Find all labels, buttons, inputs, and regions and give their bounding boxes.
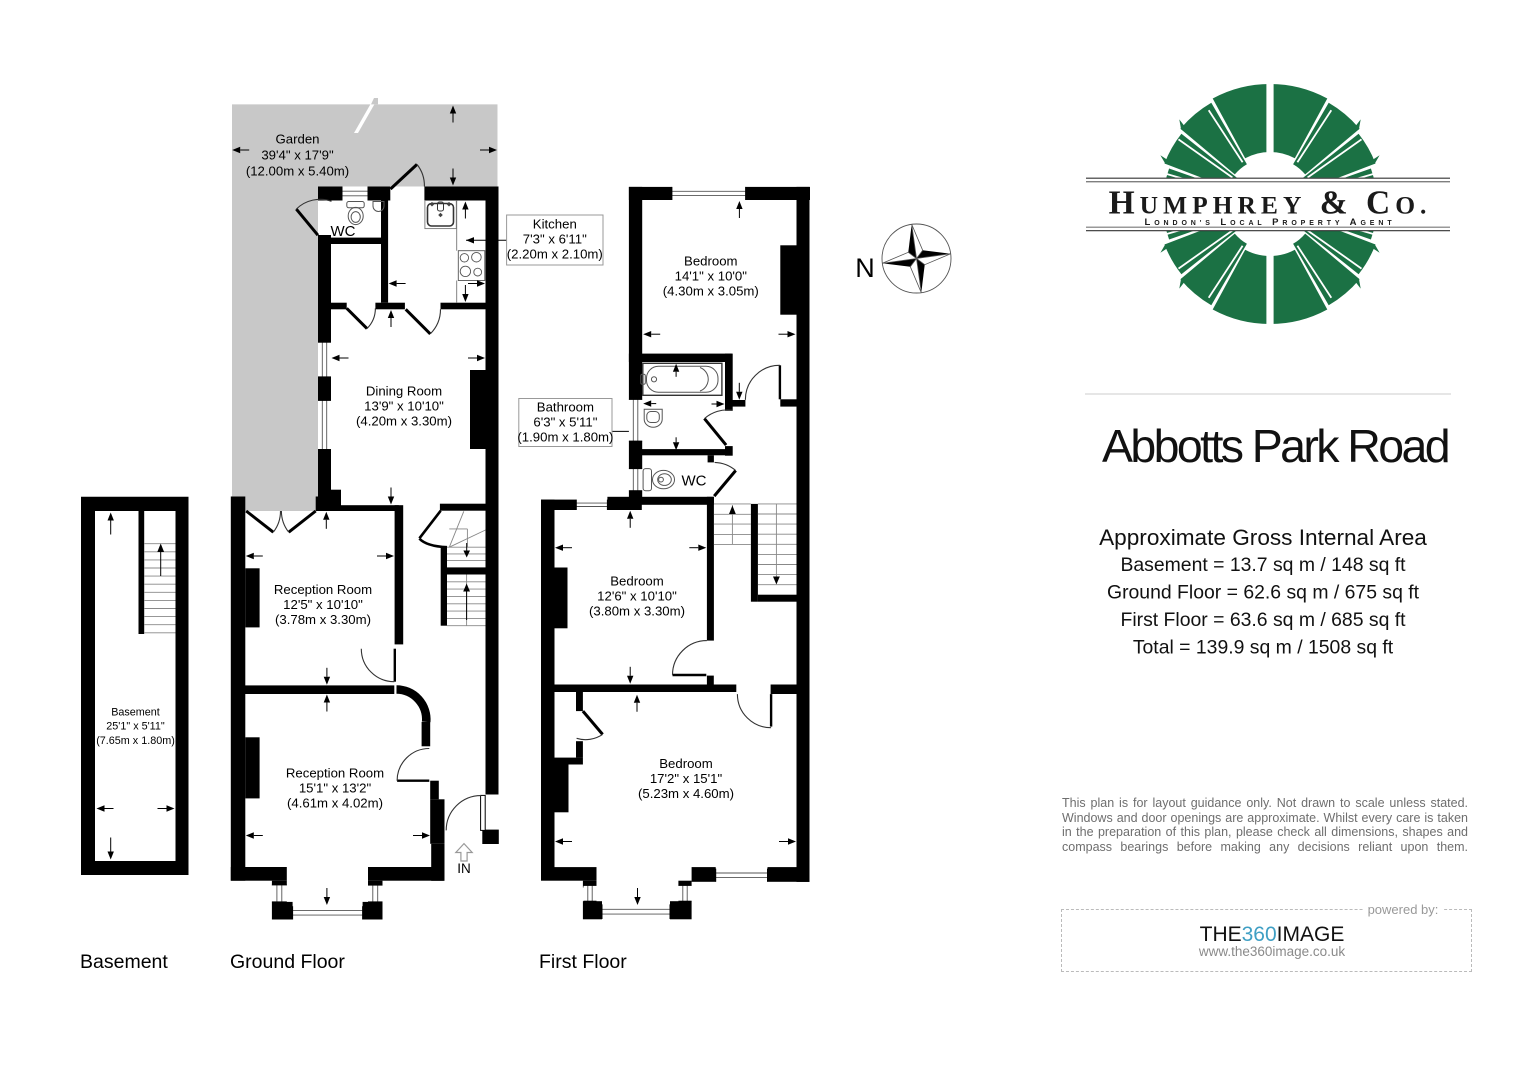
- svg-text:Bedroom: Bedroom: [610, 574, 664, 589]
- svg-text:(12.00m x 5.40m): (12.00m x 5.40m): [246, 164, 349, 179]
- svg-text:(1.90m x 1.80m): (1.90m x 1.80m): [517, 430, 613, 445]
- svg-text:6'3" x 5'11": 6'3" x 5'11": [533, 415, 597, 430]
- svg-text:Bedroom: Bedroom: [659, 756, 713, 771]
- svg-text:IN: IN: [457, 861, 471, 876]
- svg-text:39'4" x 17'9": 39'4" x 17'9": [261, 148, 334, 163]
- svg-text:(3.78m x 3.30m): (3.78m x 3.30m): [275, 612, 371, 627]
- svg-text:(4.30m x 3.05m): (4.30m x 3.05m): [663, 284, 759, 299]
- svg-text:13'9" x 10'10": 13'9" x 10'10": [364, 399, 444, 414]
- svg-text:12'5" x 10'10": 12'5" x 10'10": [283, 597, 363, 612]
- svg-text:WC: WC: [682, 473, 707, 490]
- svg-text:Reception Room: Reception Room: [274, 582, 372, 597]
- svg-text:Ground Floor: Ground Floor: [230, 951, 345, 973]
- svg-text:(7.65m x 1.80m): (7.65m x 1.80m): [96, 735, 175, 747]
- svg-text:Kitchen: Kitchen: [533, 217, 577, 232]
- svg-text:(2.20m x 2.10m): (2.20m x 2.10m): [507, 247, 603, 262]
- svg-text:Reception Room: Reception Room: [286, 766, 384, 781]
- svg-text:Basement: Basement: [80, 951, 168, 973]
- svg-text:WC: WC: [331, 223, 356, 240]
- svg-text:Abbotts Park Road: Abbotts Park Road: [1102, 420, 1448, 472]
- svg-text:Bathroom: Bathroom: [537, 400, 594, 415]
- svg-text:14'1" x 10'0": 14'1" x 10'0": [675, 269, 748, 284]
- svg-text:Basement: Basement: [111, 707, 160, 719]
- svg-text:7'3" x 6'11": 7'3" x 6'11": [523, 232, 587, 247]
- svg-text:Total = 139.9 sq m / 1508 sq f: Total = 139.9 sq m / 1508 sq ft: [1133, 637, 1394, 659]
- svg-text:Bedroom: Bedroom: [684, 254, 738, 269]
- svg-text:17'2" x 15'1": 17'2" x 15'1": [650, 771, 723, 786]
- svg-text:25'1" x 5'11": 25'1" x 5'11": [106, 721, 165, 733]
- svg-text:First Floor = 63.6 sq m / 685: First Floor = 63.6 sq m / 685 sq ft: [1120, 609, 1406, 631]
- svg-text:Approximate Gross Internal Are: Approximate Gross Internal Area: [1099, 525, 1427, 550]
- svg-text:N: N: [855, 253, 875, 283]
- svg-text:(4.20m x 3.30m): (4.20m x 3.30m): [356, 414, 452, 429]
- svg-text:Dining Room: Dining Room: [366, 384, 442, 399]
- svg-text:12'6" x 10'10": 12'6" x 10'10": [597, 589, 677, 604]
- svg-text:Garden: Garden: [276, 132, 320, 147]
- svg-text:First Floor: First Floor: [539, 951, 627, 973]
- svg-text:15'1" x 13'2": 15'1" x 13'2": [299, 781, 372, 796]
- svg-text:(3.80m x 3.30m): (3.80m x 3.30m): [589, 604, 685, 619]
- svg-text:(4.61m x 4.02m): (4.61m x 4.02m): [287, 796, 383, 811]
- svg-text:Ground Floor = 62.6 sq m / 675: Ground Floor = 62.6 sq m / 675 sq ft: [1107, 582, 1420, 604]
- svg-text:Basement = 13.7 sq m / 148 sq: Basement = 13.7 sq m / 148 sq ft: [1120, 554, 1406, 576]
- svg-text:(5.23m x 4.60m): (5.23m x 4.60m): [638, 786, 734, 801]
